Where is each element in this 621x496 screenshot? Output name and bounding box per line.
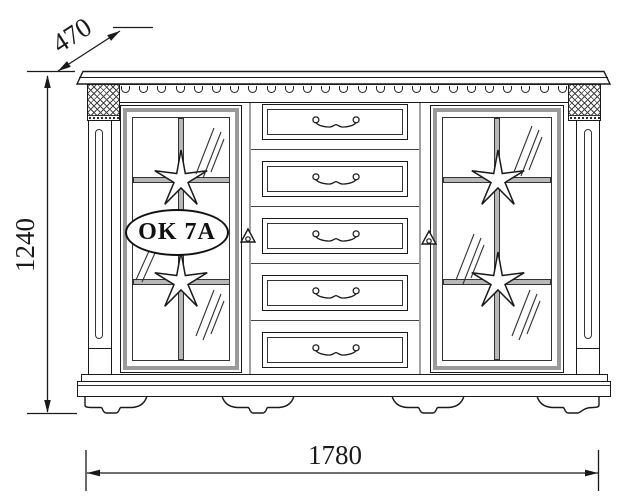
scallop [248, 86, 257, 93]
width-dimension-label: 1780 [235, 442, 435, 469]
foot-right [536, 396, 600, 416]
scallop [121, 86, 130, 93]
scallop [376, 86, 385, 93]
capital-dots [569, 115, 600, 120]
scallop [412, 86, 421, 93]
glass-reflection [510, 286, 544, 342]
scallop [358, 86, 367, 93]
scallop [176, 86, 185, 93]
scallop [449, 86, 458, 93]
height-dimension-label: 1240 [12, 175, 42, 315]
drawer-handle [308, 113, 364, 131]
drawer-3 [262, 218, 408, 254]
foot-left [84, 396, 148, 416]
flute-left [95, 129, 103, 339]
scallop-molding [121, 86, 567, 96]
pilaster-base-left [88, 348, 112, 375]
glass-reflection [512, 122, 546, 178]
plinth-board [77, 381, 611, 397]
scallop [212, 86, 221, 93]
model-label: OK 7A [138, 219, 216, 246]
scallop [267, 86, 276, 93]
scallop [285, 86, 294, 93]
foot-center-left [221, 396, 295, 416]
flute-right [584, 129, 592, 339]
drawer-2 [262, 161, 408, 197]
scallop [394, 86, 403, 93]
scallop [303, 86, 312, 93]
door-pull-right [421, 229, 437, 247]
scallop [540, 86, 549, 93]
scallop [230, 86, 239, 93]
drawer-handle [308, 341, 364, 359]
pilaster-base-right [576, 348, 600, 375]
capital-right [568, 84, 601, 121]
drawer-handle [308, 284, 364, 302]
scallop [430, 86, 439, 93]
glass-reflection [454, 230, 488, 286]
foot-center-right [391, 396, 465, 416]
top-board [77, 72, 610, 85]
glass-reflection [194, 124, 228, 180]
capital-dots [88, 115, 119, 120]
drawer-handle [308, 170, 364, 188]
scallop [139, 86, 148, 93]
scallop [194, 86, 203, 93]
scallop [521, 86, 530, 93]
drawer-5 [262, 332, 408, 368]
model-badge: OK 7A [125, 209, 229, 256]
capital-left [87, 84, 120, 121]
glass-reflection [194, 286, 228, 342]
drawer-1 [262, 104, 408, 140]
furniture-technical-drawing: 470 1240 1780 [0, 0, 621, 496]
scallop [157, 86, 166, 93]
scallop [321, 86, 330, 93]
drawer-4 [262, 275, 408, 311]
drawer-handle [308, 227, 364, 245]
door-pull-left [240, 227, 256, 245]
scallop [485, 86, 494, 93]
scallop [339, 86, 348, 93]
scallop [467, 86, 476, 93]
scallop [503, 86, 512, 93]
scallop [558, 86, 567, 93]
plinth-line [78, 385, 610, 386]
